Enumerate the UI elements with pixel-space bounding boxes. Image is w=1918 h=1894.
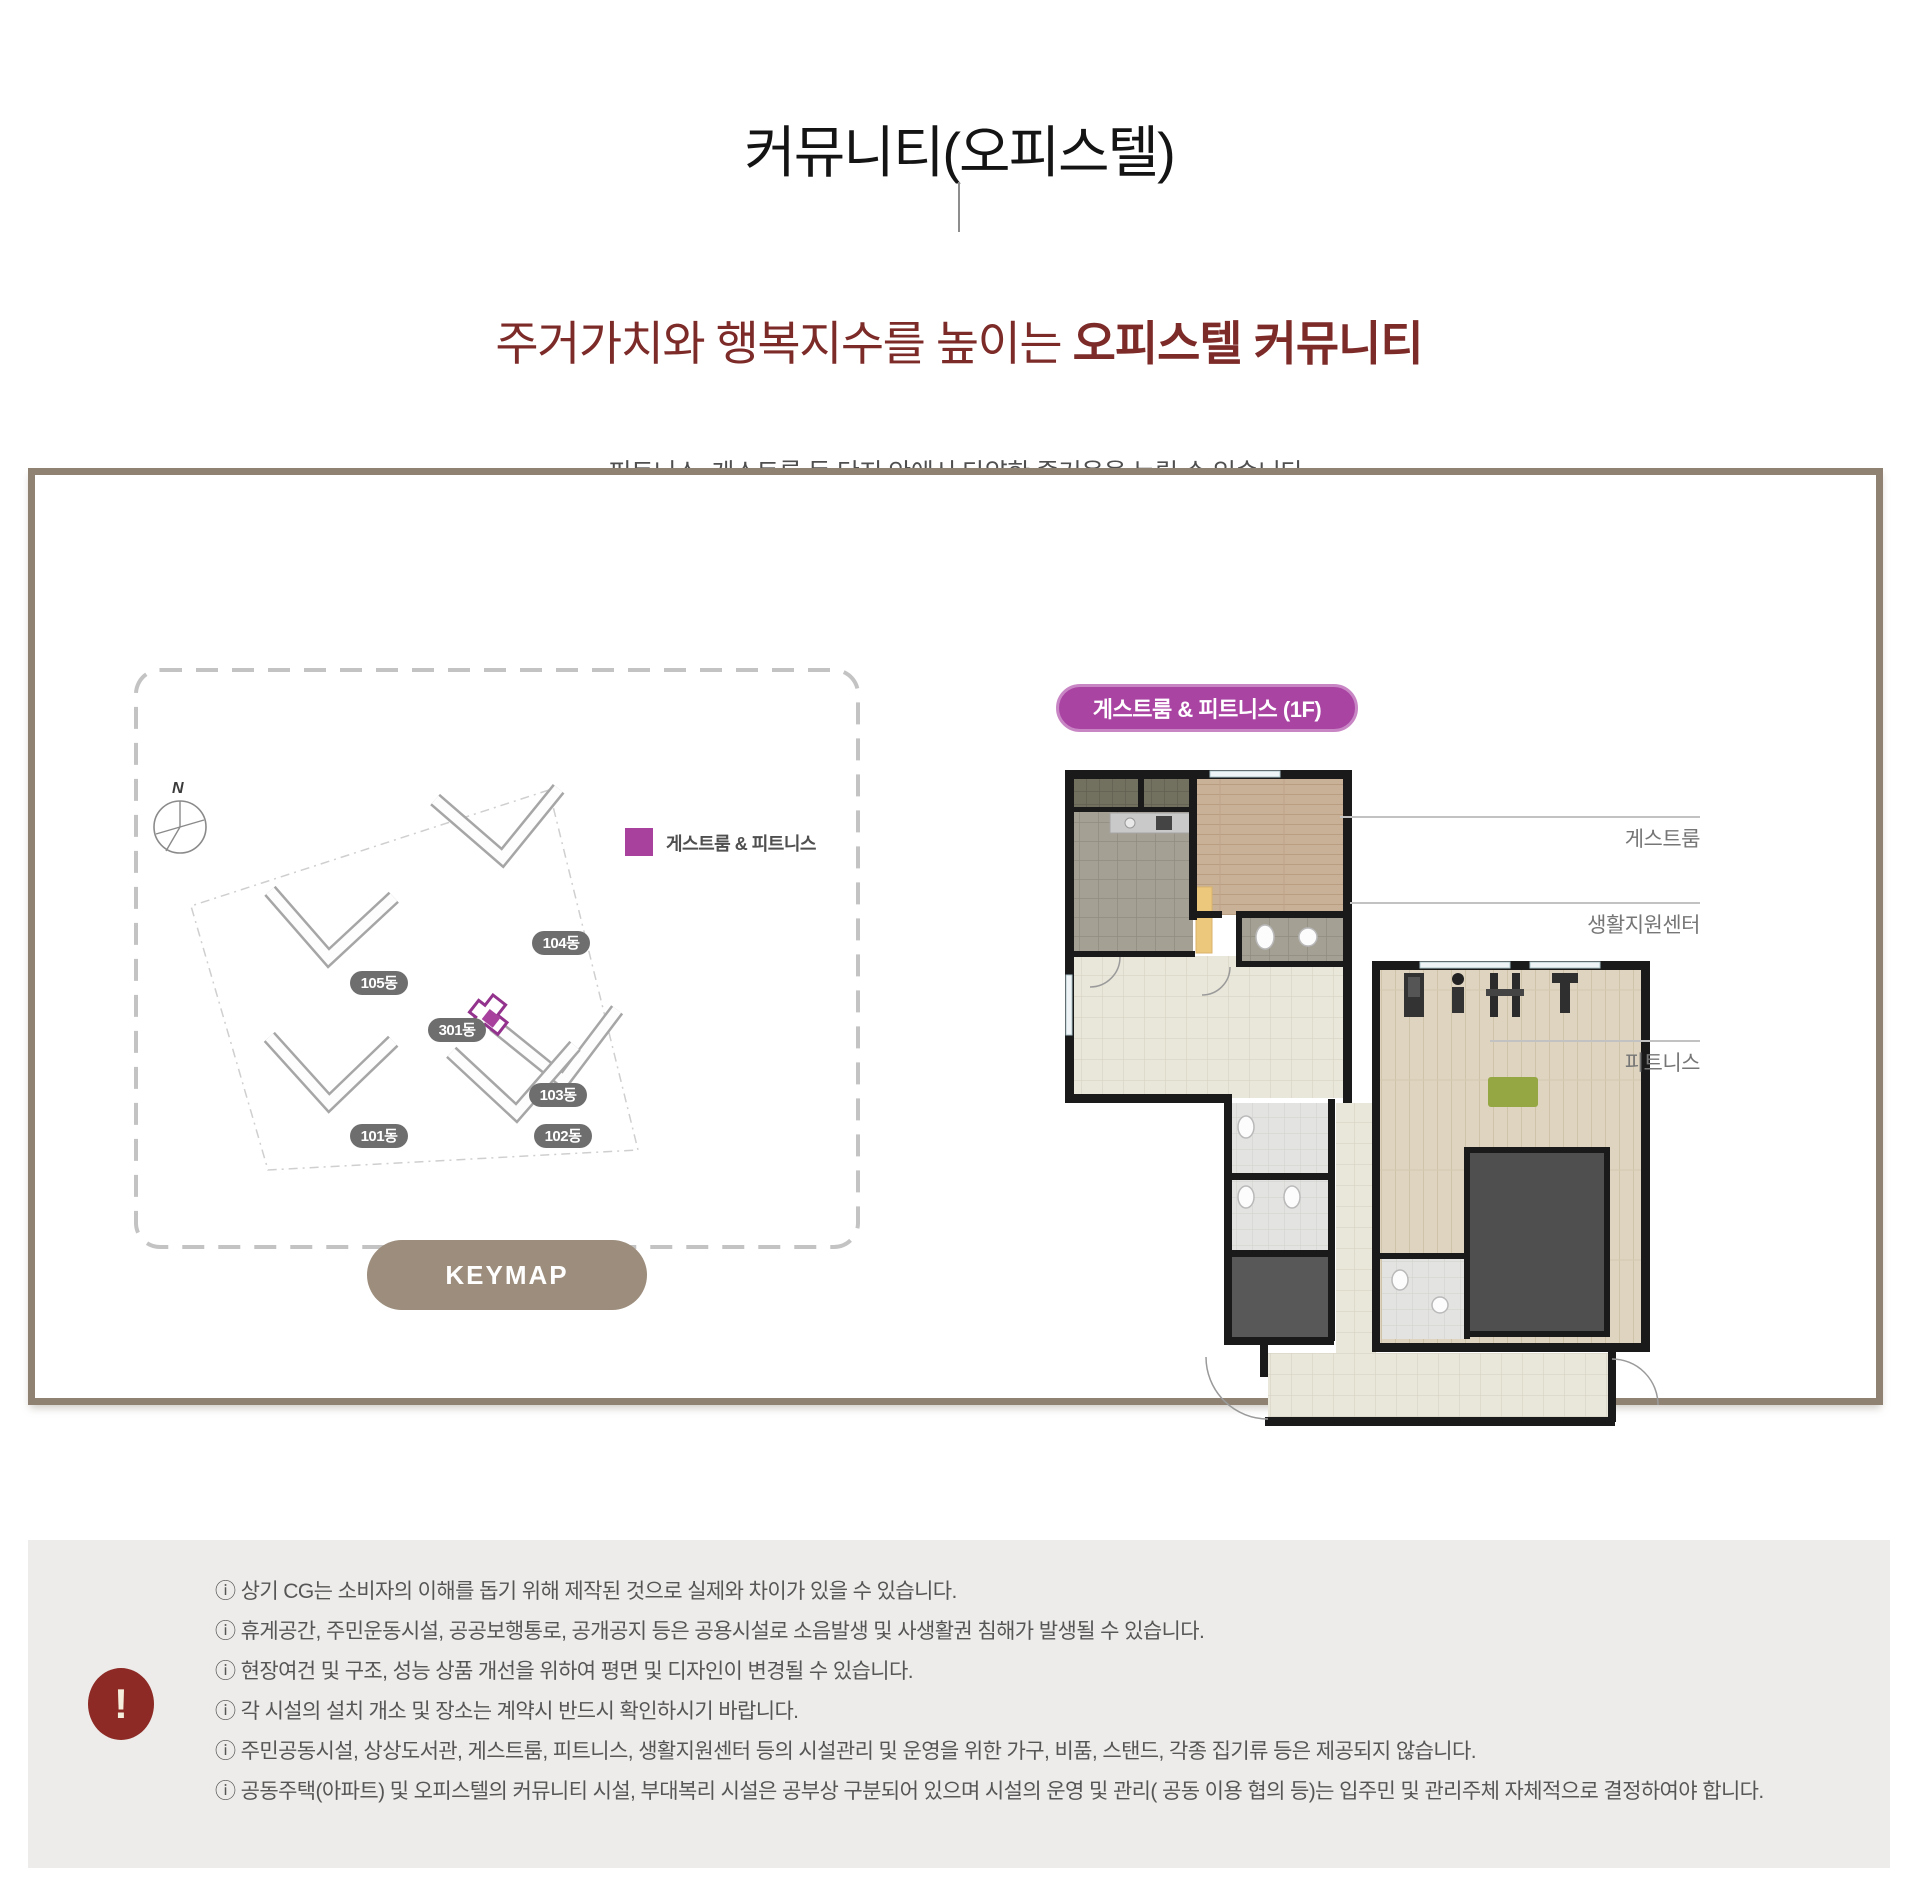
callout-label-fitness: 피트니스	[1400, 1047, 1700, 1077]
guest-bathroom	[1238, 915, 1346, 963]
toilet	[1392, 1270, 1408, 1290]
exercise-mat	[1488, 1077, 1538, 1107]
keymap-button[interactable]: KEYMAP	[367, 1240, 647, 1310]
svg-text:301동: 301동	[439, 1022, 477, 1039]
building-label-101: 101동	[350, 1124, 408, 1148]
toilet	[1238, 1186, 1254, 1208]
svg-text:게스트룸 & 피트니스: 게스트룸 & 피트니스	[666, 834, 816, 854]
disclaimer-item: ⓘ 상기 CG는 소비자의 이해를 돕기 위해 제작된 것으로 실제와 차이가 …	[215, 1572, 1905, 1612]
basin	[1299, 928, 1317, 946]
building-103-shape	[494, 1010, 625, 1089]
toilet	[1256, 925, 1274, 949]
warning-icon: !	[88, 1668, 154, 1740]
keymap-dashed-border	[136, 670, 858, 1247]
building-label-104: 104동	[532, 931, 590, 955]
building-105-shape	[267, 891, 394, 961]
stove	[1156, 816, 1172, 830]
building-label-102: 102동	[534, 1124, 592, 1148]
subtitle-normal: 주거가치와 행복지수를 높이는	[495, 317, 1072, 370]
toilet	[1284, 1186, 1300, 1208]
callout-label-guestroom: 게스트룸	[1400, 823, 1700, 853]
page-title: 커뮤니티(오피스텔)	[0, 108, 1918, 189]
svg-text:104동: 104동	[543, 935, 581, 952]
callout-line-fitness	[1490, 1040, 1700, 1042]
site-boundary	[191, 790, 638, 1170]
disclaimer-item: ⓘ 현장여건 및 구조, 성능 상품 개선을 위하여 평면 및 디자인이 변경될…	[215, 1652, 1905, 1692]
callout-line-guestroom	[1340, 816, 1700, 818]
storage-room	[1228, 1257, 1328, 1337]
floorplan-badge: 게스트룸 & 피트니스 (1F)	[1056, 684, 1358, 732]
building-label-103: 103동	[529, 1083, 587, 1107]
guest-room	[1196, 775, 1346, 915]
entrance-porch	[1268, 1353, 1612, 1419]
building-101-shape	[267, 1037, 393, 1105]
disclaimer-item: ⓘ 주민공동시설, 상상도서관, 게스트룸, 피트니스, 생활지원센터 등의 시…	[215, 1732, 1905, 1772]
legend-guestroom-fitness: 게스트룸 & 피트니스	[625, 828, 816, 856]
legend-color-swatch	[625, 828, 653, 856]
svg-text:101동: 101동	[361, 1128, 399, 1145]
cabinet	[1196, 887, 1212, 953]
callout-label-support-center: 생활지원센터	[1400, 909, 1700, 939]
subtitle-strong: 오피스텔 커뮤니티	[1073, 317, 1423, 370]
svg-text:N: N	[172, 780, 184, 797]
disclaimer-list: ⓘ 상기 CG는 소비자의 이해를 돕기 위해 제작된 것으로 실제와 차이가 …	[215, 1572, 1905, 1812]
vertical-divider	[958, 182, 960, 232]
building-label-301: 301동	[428, 1018, 486, 1042]
compass-icon: N	[154, 780, 206, 853]
sink	[1125, 818, 1135, 828]
closet-rooms	[1070, 775, 1193, 811]
corridor	[1336, 1103, 1376, 1353]
toilet	[1238, 1116, 1254, 1138]
disclaimer-item: ⓘ 공동주택(아파트) 및 오피스텔의 커뮤니티 시설, 부대복리 시설은 공부…	[215, 1772, 1905, 1812]
equipment-room	[1470, 1153, 1604, 1331]
svg-text:102동: 102동	[545, 1128, 583, 1145]
svg-text:103동: 103동	[540, 1087, 578, 1104]
svg-text:105동: 105동	[361, 975, 399, 992]
floorplan-drawing	[1060, 765, 1660, 1440]
building-label-105: 105동	[350, 971, 408, 995]
fitness-bathroom	[1382, 1257, 1466, 1339]
callout-line-support-center	[1350, 902, 1700, 904]
kitchen-counter	[1110, 813, 1193, 833]
section-subtitle: 주거가치와 행복지수를 높이는 오피스텔 커뮤니티	[0, 305, 1918, 374]
disclaimer-item: ⓘ 휴게공간, 주민운동시설, 공공보행통로, 공개공지 등은 공용시설로 소음…	[215, 1612, 1905, 1652]
basin	[1432, 1297, 1448, 1313]
disclaimer-item: ⓘ 각 시설의 설치 개소 및 장소는 계약시 반드시 확인하시기 바랍니다.	[215, 1692, 1905, 1732]
community-officetel-page: 커뮤니티(오피스텔) 주거가치와 행복지수를 높이는 오피스텔 커뮤니티 피트니…	[0, 0, 1918, 1894]
building-104-shape	[435, 789, 564, 864]
